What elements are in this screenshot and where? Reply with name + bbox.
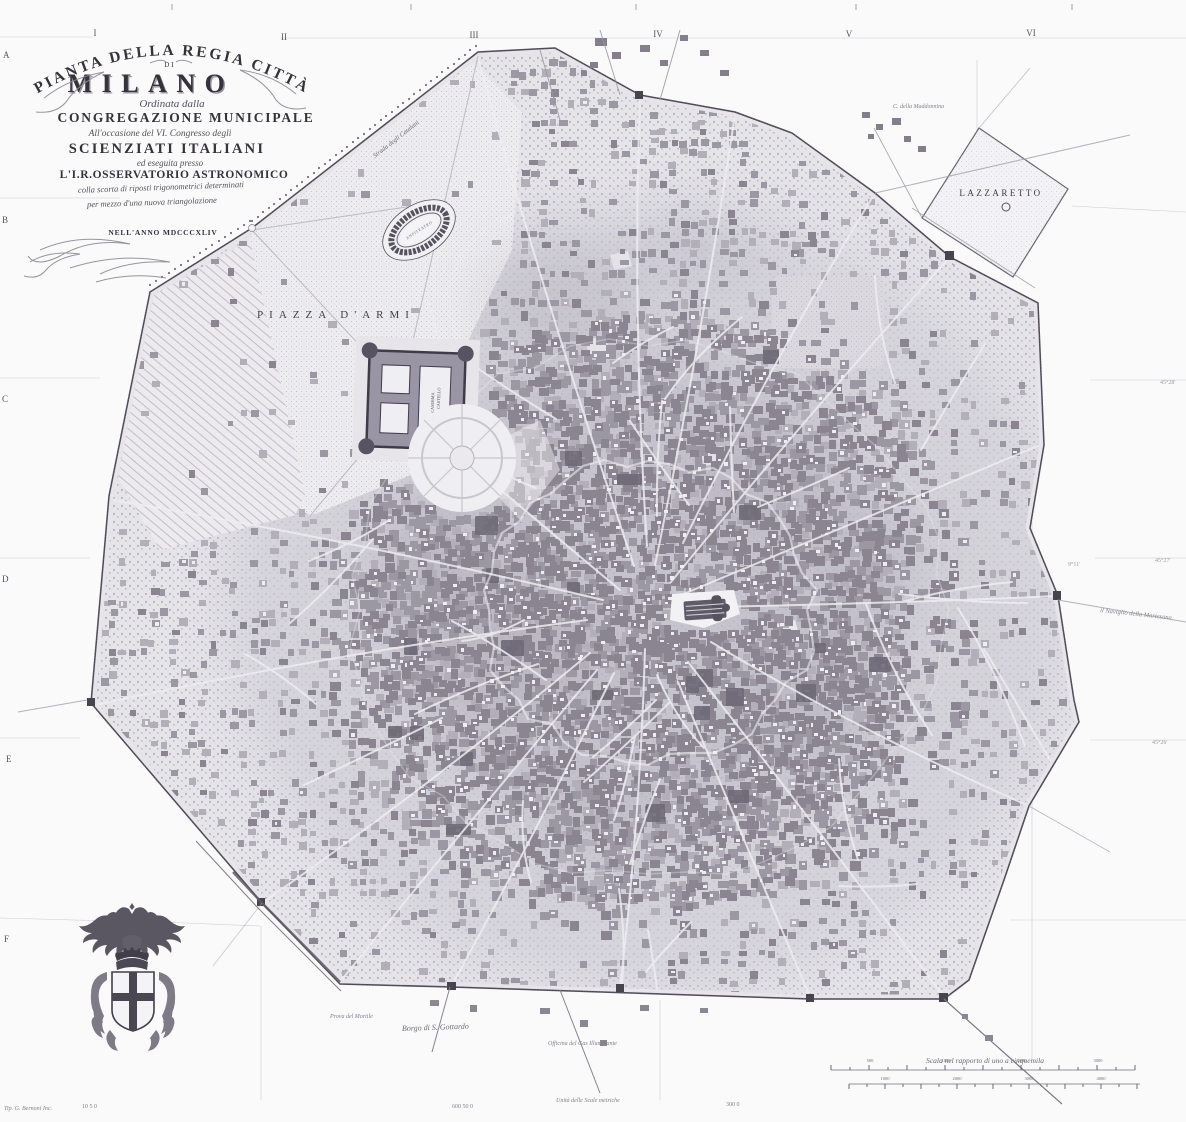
svg-text:CASERMA: CASERMA	[430, 392, 436, 412]
svg-text:D: D	[2, 574, 9, 584]
svg-text:3000: 3000	[1094, 1058, 1104, 1063]
svg-text:LAZZARETTO: LAZZARETTO	[959, 188, 1042, 198]
svg-text:Tip. G. Bernoni Inc.: Tip. G. Bernoni Inc.	[4, 1106, 52, 1112]
svg-text:A: A	[3, 50, 10, 60]
svg-text:V: V	[846, 29, 853, 39]
svg-text:2000: 2000	[953, 1076, 963, 1081]
svg-text:600 50 0: 600 50 0	[452, 1104, 473, 1110]
svg-text:III: III	[470, 30, 479, 40]
svg-text:CONGREGAZIONE MUNICIPALE: CONGREGAZIONE MUNICIPALE	[57, 110, 314, 125]
svg-text:C. della Maddonnina: C. della Maddonnina	[893, 104, 944, 110]
svg-text:45°28': 45°28'	[1160, 379, 1175, 386]
svg-text:Officina del Gas Illuminante: Officina del Gas Illuminante	[548, 1040, 617, 1047]
svg-text:9°11': 9°11'	[1068, 561, 1080, 568]
svg-text:VI: VI	[1026, 28, 1036, 38]
svg-text:2000: 2000	[1018, 1058, 1028, 1063]
svg-text:PIAZZA D'ARMI: PIAZZA D'ARMI	[257, 309, 415, 321]
svg-text:4000: 4000	[1097, 1076, 1107, 1081]
svg-text:DI: DI	[164, 61, 175, 69]
svg-text:45°27': 45°27'	[1155, 557, 1170, 564]
svg-text:10 5 0: 10 5 0	[82, 1104, 97, 1110]
svg-text:45°26': 45°26'	[1152, 739, 1167, 746]
svg-text:B: B	[2, 215, 8, 225]
svg-text:E: E	[6, 754, 12, 764]
svg-text:300 0: 300 0	[726, 1102, 740, 1108]
svg-text:ed eseguita presso: ed eseguita presso	[137, 158, 204, 168]
svg-text:All'occasione del VI. Congress: All'occasione del VI. Congresso degli	[88, 129, 232, 139]
svg-text:L'I.R.OSSERVATORIO ASTRONOMICO: L'I.R.OSSERVATORIO ASTRONOMICO	[60, 169, 289, 181]
svg-text:NELL'ANNO MDCCCXLIV: NELL'ANNO MDCCCXLIV	[108, 228, 217, 237]
svg-text:Ordinata dalla: Ordinata dalla	[139, 98, 205, 110]
svg-text:I: I	[94, 28, 97, 38]
svg-text:MILANO: MILANO	[68, 69, 235, 98]
svg-text:1000: 1000	[942, 1058, 952, 1063]
svg-text:3000: 3000	[1025, 1076, 1035, 1081]
svg-text:SCIENZIATI ITALIANI: SCIENZIATI ITALIANI	[69, 141, 265, 157]
svg-text:F: F	[4, 934, 9, 944]
svg-text:Prova del Mortile: Prova del Mortile	[329, 1014, 373, 1020]
svg-text:Unità delle Scale metriche: Unità delle Scale metriche	[556, 1098, 620, 1104]
svg-text:II: II	[281, 32, 287, 42]
svg-text:1000: 1000	[881, 1076, 891, 1081]
svg-text:500: 500	[867, 1058, 875, 1063]
svg-text:C: C	[2, 394, 8, 404]
svg-text:IV: IV	[653, 29, 663, 39]
